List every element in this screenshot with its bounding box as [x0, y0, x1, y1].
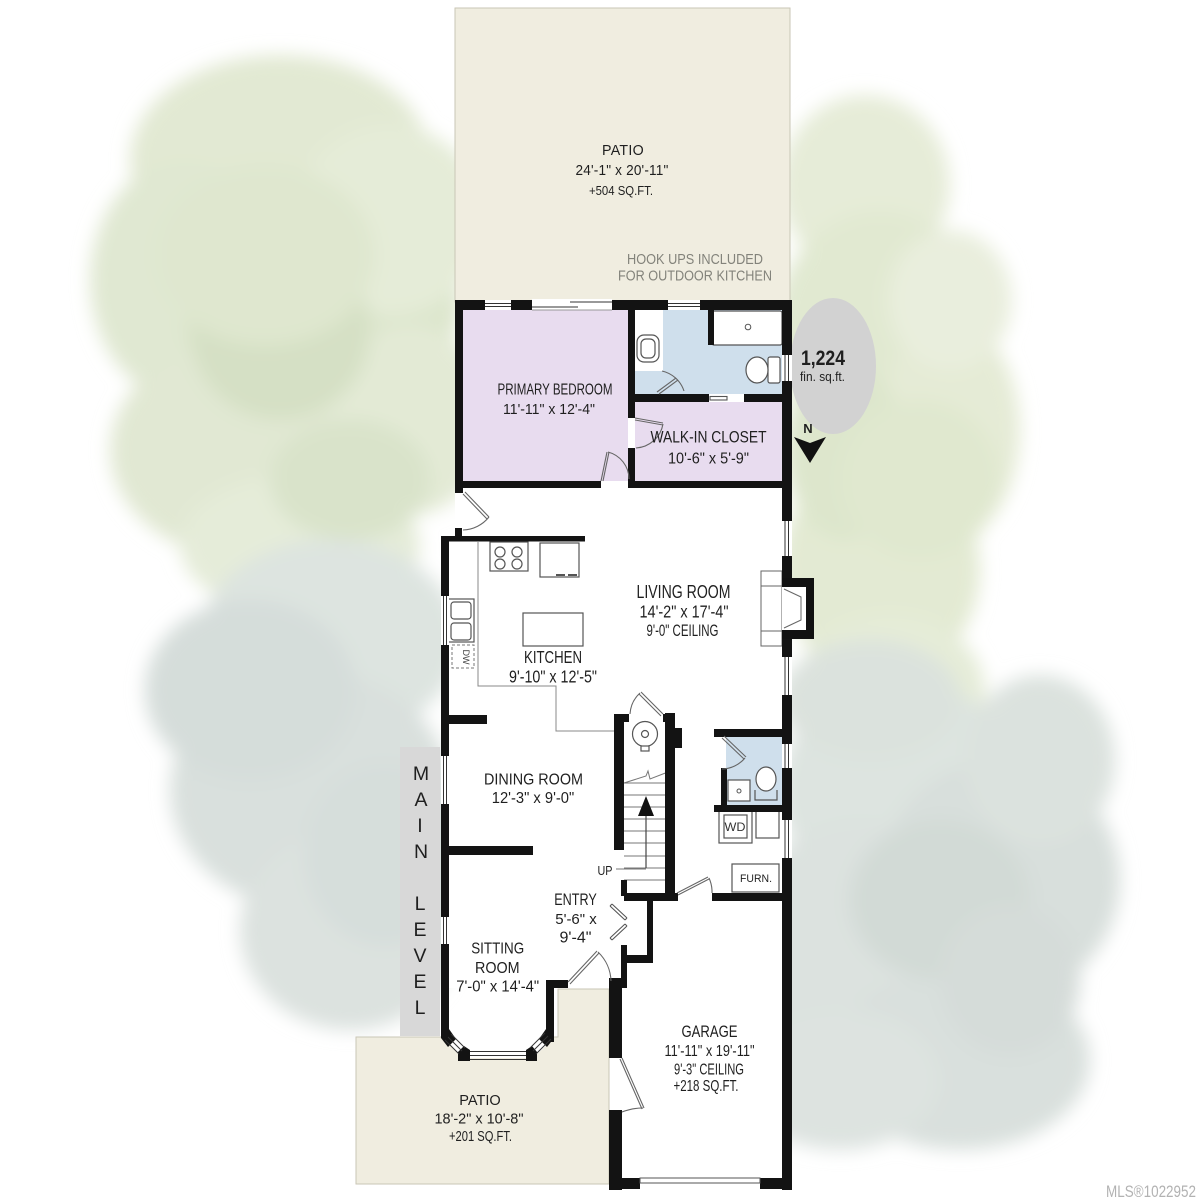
svg-text:L: L	[415, 893, 426, 915]
svg-text:10'-6" x 5'-9": 10'-6" x 5'-9"	[668, 451, 749, 468]
svg-text:A: A	[414, 789, 427, 811]
svg-text:PATIO: PATIO	[459, 1092, 501, 1109]
svg-text:+218 SQ.FT.: +218 SQ.FT.	[674, 1078, 739, 1095]
svg-text:E: E	[413, 971, 426, 993]
svg-text:11'-11" x 19'-11": 11'-11" x 19'-11"	[665, 1043, 755, 1060]
svg-text:V: V	[413, 945, 426, 967]
svg-text:HOOK UPS INCLUDED: HOOK UPS INCLUDED	[627, 252, 763, 268]
svg-text:E: E	[413, 919, 426, 941]
svg-text:L: L	[415, 997, 426, 1019]
svg-text:SITTING: SITTING	[471, 941, 524, 958]
svg-text:11'-11" x 12'-4": 11'-11" x 12'-4"	[503, 402, 595, 418]
svg-text:FOR OUTDOOR KITCHEN: FOR OUTDOOR KITCHEN	[618, 269, 772, 285]
svg-text:MLS®1022952: MLS®1022952	[1106, 1182, 1196, 1200]
svg-text:DINING ROOM: DINING ROOM	[484, 772, 583, 789]
svg-text:ENTRY: ENTRY	[554, 891, 597, 909]
svg-text:LIVING ROOM: LIVING ROOM	[637, 582, 731, 602]
svg-text:ROOM: ROOM	[475, 960, 520, 977]
svg-text:12'-3" x 9'-0": 12'-3" x 9'-0"	[492, 790, 575, 807]
svg-text:WD: WD	[725, 822, 746, 834]
svg-text:N: N	[414, 841, 428, 863]
svg-text:9'-10" x 12'-5": 9'-10" x 12'-5"	[509, 667, 597, 687]
svg-text:FURN.: FURN.	[740, 873, 772, 885]
svg-text:KITCHEN: KITCHEN	[524, 647, 582, 667]
svg-text:9'-0" CEILING: 9'-0" CEILING	[647, 622, 719, 640]
svg-text:+504 SQ.FT.: +504 SQ.FT.	[589, 183, 653, 198]
svg-text:PATIO: PATIO	[602, 142, 644, 159]
svg-text:PRIMARY BEDROOM: PRIMARY BEDROOM	[498, 382, 613, 399]
svg-text:GARAGE: GARAGE	[682, 1022, 738, 1041]
svg-text:WALK-IN CLOSET: WALK-IN CLOSET	[651, 428, 767, 447]
svg-text:N: N	[803, 421, 812, 436]
svg-text:7'-0" x 14'-4": 7'-0" x 14'-4"	[456, 979, 539, 996]
svg-text:+201 SQ.FT.: +201 SQ.FT.	[449, 1129, 512, 1145]
svg-text:18'-2" x 10'-8": 18'-2" x 10'-8"	[435, 1111, 524, 1128]
svg-text:fin. sq.ft.: fin. sq.ft.	[800, 369, 845, 384]
svg-text:14'-2" x 17'-4": 14'-2" x 17'-4"	[640, 602, 729, 622]
svg-text:UP: UP	[598, 864, 613, 878]
svg-text:24'-1" x 20'-11": 24'-1" x 20'-11"	[576, 162, 669, 179]
svg-text:9'-4": 9'-4"	[560, 930, 592, 947]
svg-text:I: I	[417, 815, 422, 837]
svg-text:DW: DW	[461, 650, 471, 665]
svg-text:9'-3" CEILING: 9'-3" CEILING	[674, 1062, 744, 1079]
svg-text:5'-6" x: 5'-6" x	[555, 911, 597, 928]
svg-text:1,224: 1,224	[801, 347, 845, 370]
svg-text:M: M	[413, 763, 429, 785]
